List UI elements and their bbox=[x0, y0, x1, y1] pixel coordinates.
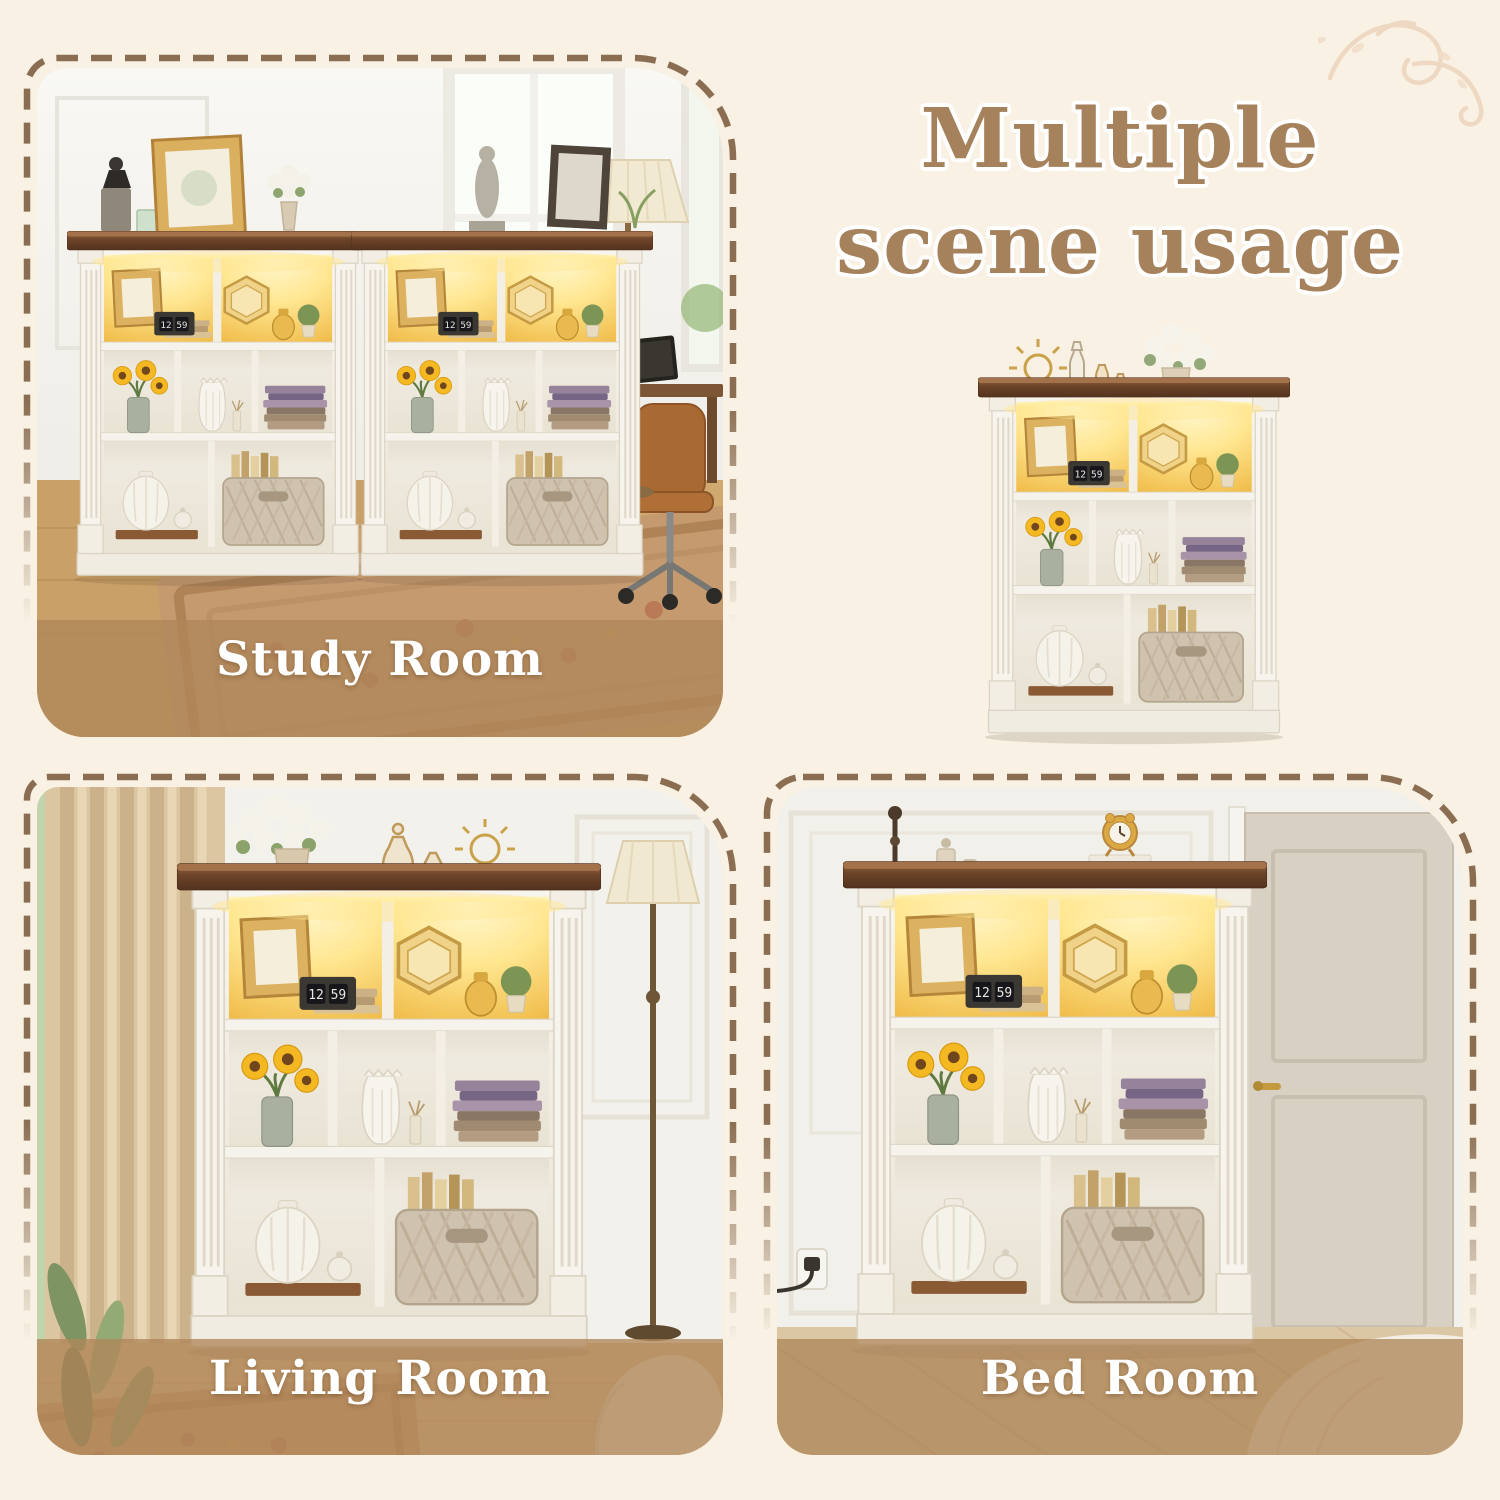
page-title: Multiple scene usage bbox=[745, 86, 1495, 298]
bookcase-illustration bbox=[978, 378, 1290, 744]
poster-canvas: Multiple scene usage bbox=[0, 0, 1500, 1500]
title-line-1: Multiple bbox=[745, 86, 1495, 192]
living-room-photo: Living Room bbox=[37, 787, 723, 1455]
study-room-label: Study Room bbox=[37, 632, 723, 687]
bookcase-illustration bbox=[177, 864, 601, 1362]
living-room-label: Living Room bbox=[37, 1351, 723, 1406]
living-room-label-band: Living Room bbox=[37, 1339, 723, 1455]
bookcase-illustration bbox=[67, 231, 369, 586]
bed-room-card: Bed Room bbox=[777, 787, 1463, 1455]
study-room-card: Study Room bbox=[37, 68, 723, 737]
bed-door bbox=[1229, 807, 1453, 1367]
living-room-card: Living Room bbox=[37, 787, 723, 1455]
product-photo bbox=[950, 316, 1330, 746]
study-room-label-band: Study Room bbox=[37, 620, 723, 737]
title-line-2: scene usage bbox=[745, 192, 1495, 298]
bed-room-label: Bed Room bbox=[777, 1351, 1463, 1406]
study-room-photo: Study Room bbox=[37, 68, 723, 737]
bed-room-photo: Bed Room bbox=[777, 787, 1463, 1455]
bed-room-label-band: Bed Room bbox=[777, 1339, 1463, 1455]
bookcase-illustration bbox=[351, 231, 653, 586]
bookcase-illustration bbox=[843, 862, 1267, 1360]
